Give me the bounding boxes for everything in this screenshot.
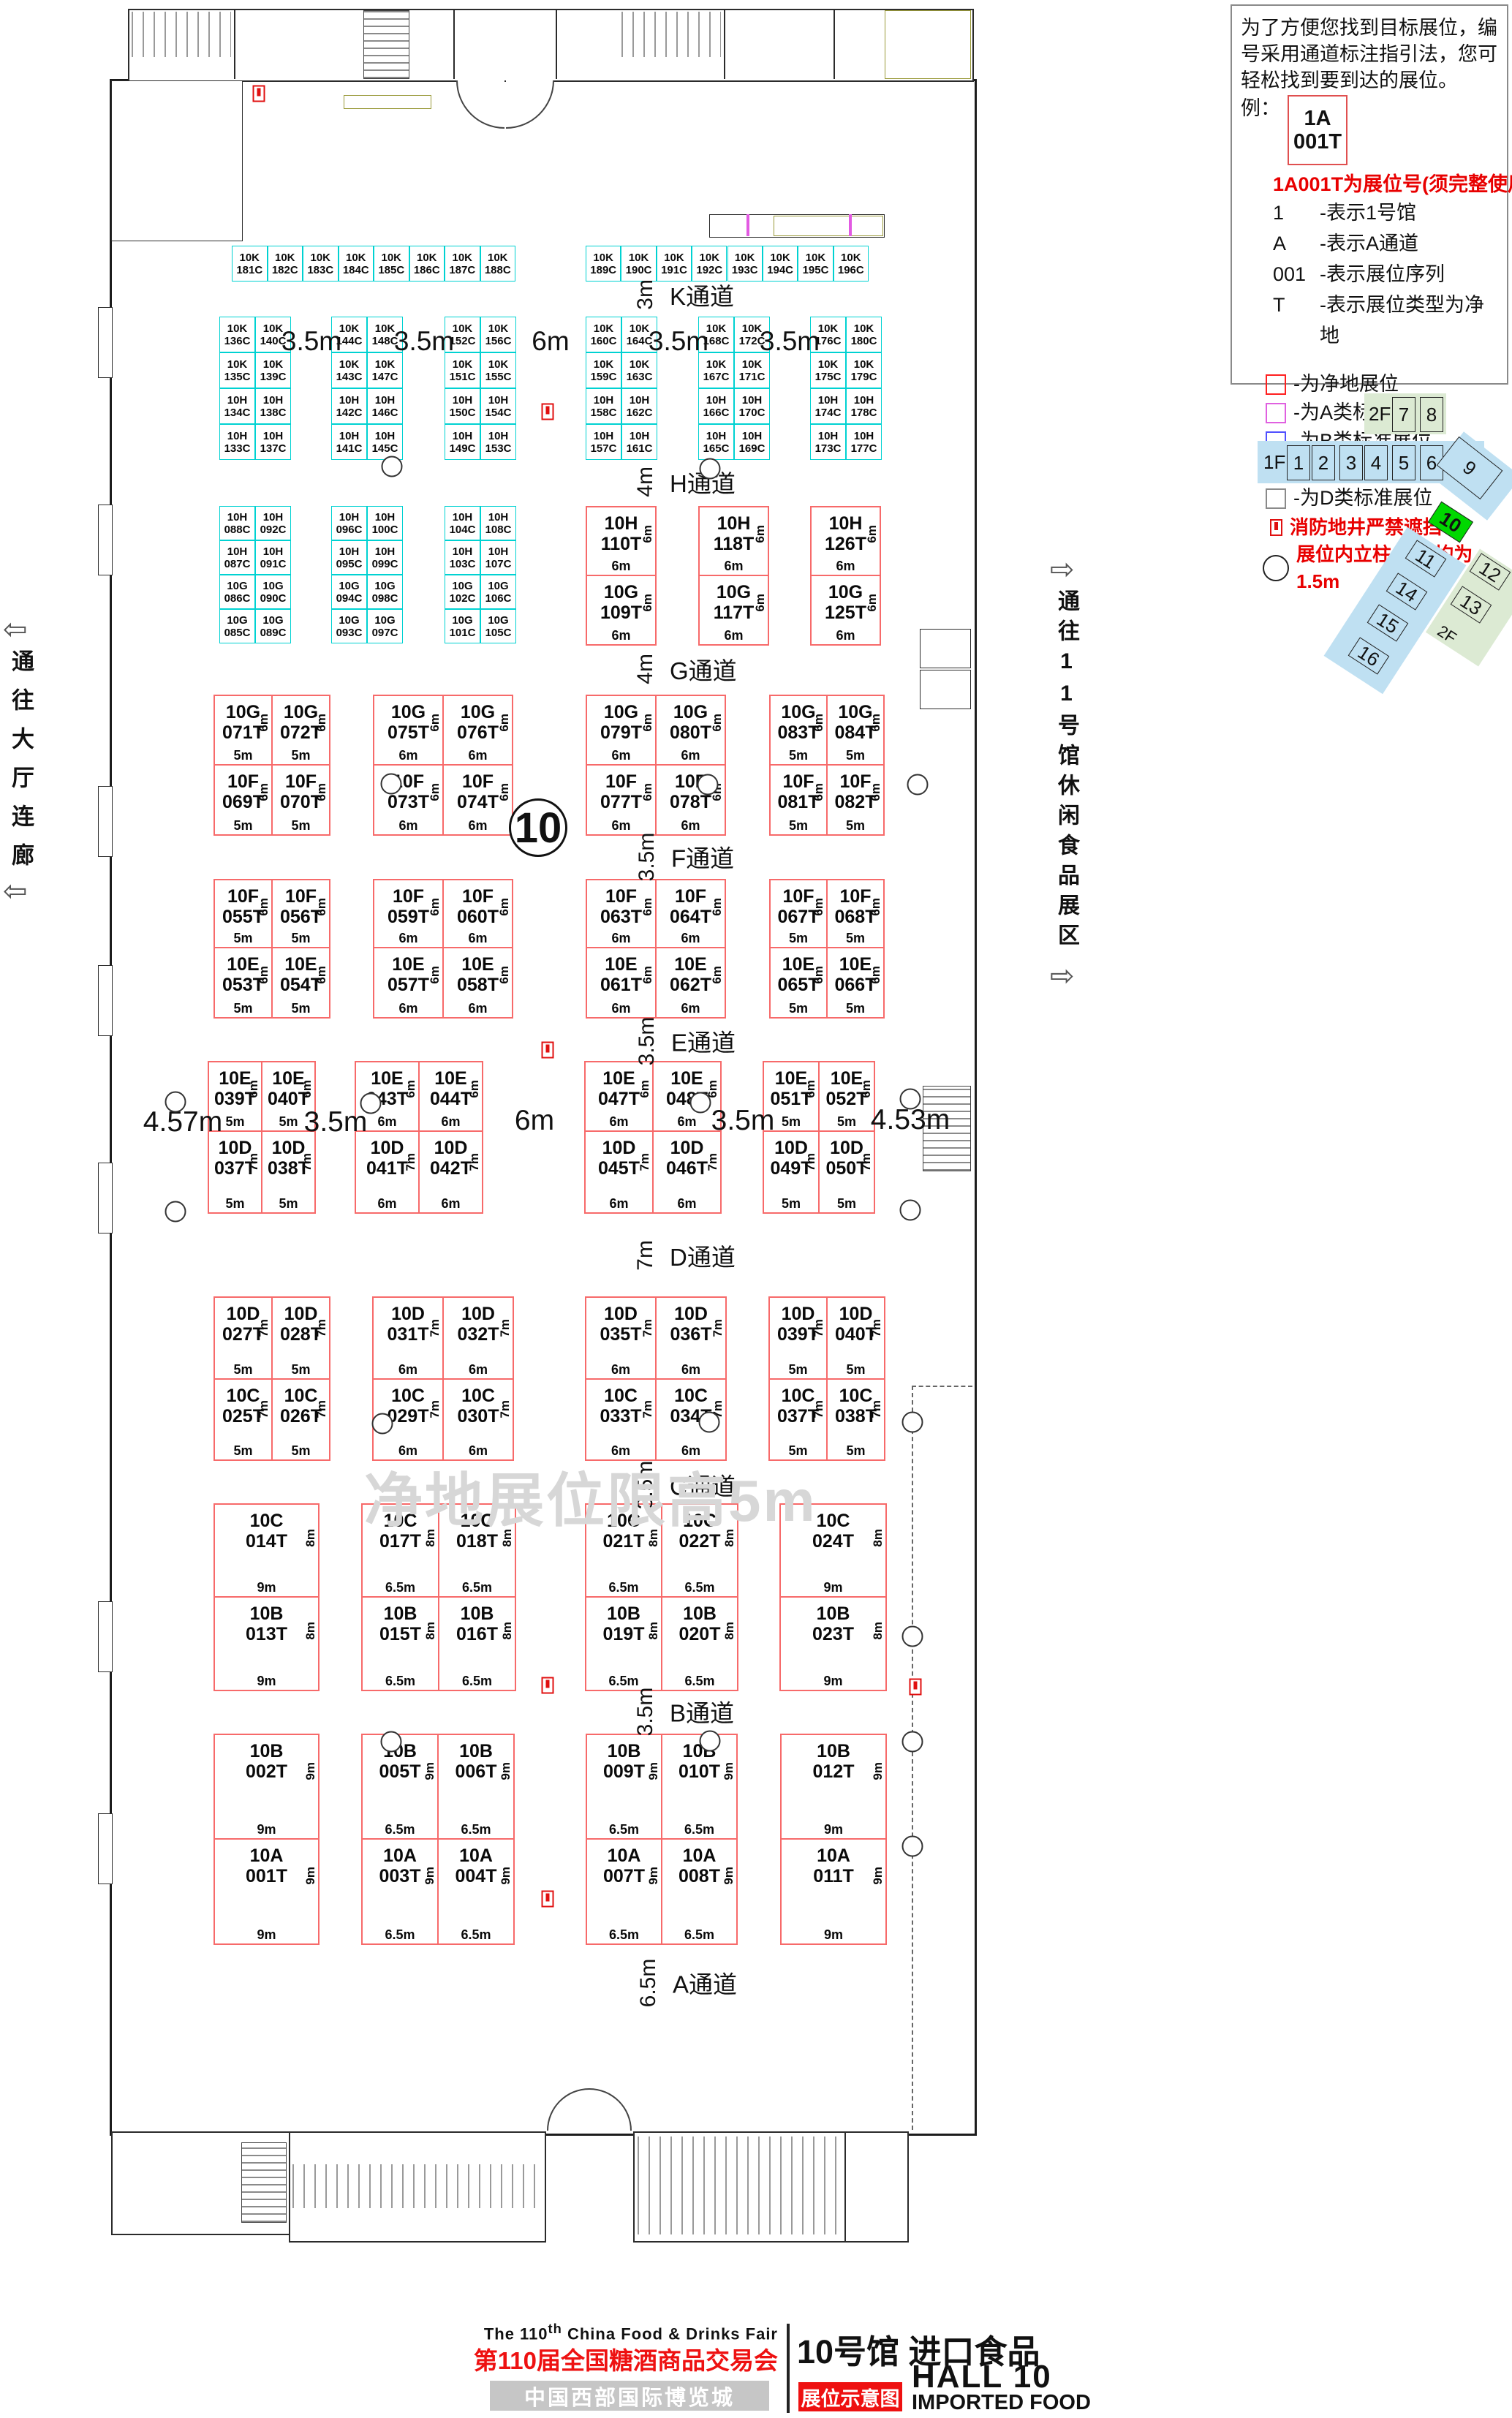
booth-text: 6.5m xyxy=(587,1822,661,1837)
booth-text: B通道 xyxy=(670,1694,734,1729)
booth-text: 6m xyxy=(640,966,655,984)
minimap-2f-label: 2F xyxy=(1369,403,1391,426)
booth-10C037T: 10C037T7m5m xyxy=(768,1378,828,1461)
booth-text: 175C xyxy=(815,371,842,383)
booth-10G075T: 10G075T6m6m xyxy=(373,695,444,766)
booth-text: 195C xyxy=(803,264,829,276)
booth-text: 6m xyxy=(444,1001,512,1016)
booth-10D042T: 10D042T7m6m xyxy=(418,1130,483,1214)
booth-text: 10K xyxy=(770,252,790,264)
booth-text: 10K xyxy=(854,322,874,335)
booth-text: 10G xyxy=(488,580,508,592)
booth-text: 002T xyxy=(215,1761,318,1782)
example-booth-line2: 001T xyxy=(1293,130,1342,154)
booth-text: 6m xyxy=(420,1114,482,1130)
dimension-label: 3.5m xyxy=(711,1105,775,1137)
booth-text: 10H xyxy=(594,430,614,442)
column-circle xyxy=(900,1089,921,1110)
booth-text: 10K xyxy=(594,358,614,371)
column-circle xyxy=(381,774,402,795)
watermark: 净地展位限高5m xyxy=(364,1454,817,1538)
booth-text: 7m xyxy=(706,1153,720,1171)
booth-10K185C: 10K185C xyxy=(374,246,409,282)
booth-10E058T: 10E058T6m6m xyxy=(442,947,513,1019)
booth-10B002T: 10B002T9m9m xyxy=(213,1734,320,1840)
booth-text: 4m xyxy=(633,654,658,684)
booth-text: 011T xyxy=(782,1866,885,1886)
booth-10F059T: 10F059T6m6m xyxy=(373,879,444,948)
booth-text: 6m xyxy=(710,714,725,732)
booth-text: 6m xyxy=(657,818,725,834)
booth-text: 10G xyxy=(339,580,359,592)
column-circle xyxy=(381,1731,402,1753)
booth-text: 5m xyxy=(273,1362,329,1378)
booth-text: 6m xyxy=(865,525,880,543)
booth-text: 099C xyxy=(372,558,398,570)
booth-10C038T: 10C038T7m5m xyxy=(826,1378,885,1461)
booth-10D040T: 10D040T7m5m xyxy=(826,1296,885,1380)
booth-text: 10K xyxy=(339,322,360,335)
booth-text: 8m xyxy=(303,1622,318,1640)
booth-text: 10H xyxy=(263,511,284,524)
booth-text: 5m xyxy=(828,1362,884,1378)
booth-text: 6m xyxy=(300,1080,314,1098)
booth-10D035T: 10D035T7m6m xyxy=(585,1296,657,1380)
booth-10K159C: 10K159C xyxy=(586,352,621,388)
booth-text: 10B xyxy=(215,1741,318,1761)
booth-10H091C: 10H091C xyxy=(255,540,291,575)
booth-10D038T: 10D038T7m5m xyxy=(261,1130,316,1214)
booth-text: 5m xyxy=(273,818,329,834)
booth-10F078T: 10F078T6m6m xyxy=(655,764,726,836)
booth-10K194C: 10K194C xyxy=(763,246,798,282)
booth-text: 10H xyxy=(854,394,874,407)
booth-text: 9m xyxy=(646,1867,661,1885)
booth-text: 6m xyxy=(374,1362,442,1378)
booth-text: 088C xyxy=(224,524,251,536)
booth-text: 196C xyxy=(838,264,864,276)
booth-10D039T: 10D039T7m5m xyxy=(768,1296,828,1380)
booth-text: 6m xyxy=(428,714,442,732)
booth-text: 10H xyxy=(339,394,360,407)
booth-text: 6m xyxy=(356,1196,418,1212)
booth-text: 6m xyxy=(657,748,725,763)
dimension-label: 3.5m xyxy=(760,326,820,357)
booth-text: 182C xyxy=(272,264,298,276)
booth-text: 6m xyxy=(657,931,725,946)
booth-text: 10K xyxy=(339,358,360,371)
booth-text: 165C xyxy=(703,442,730,455)
booth-text: 10H xyxy=(453,511,473,524)
column-circle xyxy=(360,1093,382,1114)
booth-text: 5m xyxy=(820,1196,874,1212)
booth-text: 9m xyxy=(722,1867,736,1885)
booth-text: 10H xyxy=(488,430,509,442)
booth-10G071T: 10G071T6m5m xyxy=(213,695,273,766)
booth-text: 8m xyxy=(871,1529,885,1547)
booth-text: 8m xyxy=(303,1529,318,1547)
booth-text: 6m xyxy=(640,783,655,801)
booth-text: 5m xyxy=(771,748,826,763)
booth-text: 6m xyxy=(404,1080,418,1098)
booth-text: 9m xyxy=(781,1580,885,1595)
booth-text: 10H xyxy=(818,430,839,442)
booth-text: 9m xyxy=(499,1867,513,1885)
booth-text: 189C xyxy=(590,264,616,276)
booth-10K180C: 10K180C xyxy=(846,317,882,352)
booth-text: 10H xyxy=(453,394,473,407)
booth-text: 095C xyxy=(336,558,363,570)
booth-text: 7m xyxy=(428,1319,442,1337)
booth-text: 136C xyxy=(224,335,251,347)
booth-text: 3m xyxy=(633,279,658,310)
booth-10F063T: 10F063T6m6m xyxy=(586,879,657,948)
booth-10A011T: 10A011T9m9m xyxy=(780,1838,887,1945)
booth-text: 180C xyxy=(851,335,877,347)
title-en-part: The 110 xyxy=(484,2324,548,2343)
booth-text: 6m xyxy=(587,818,655,834)
column-circle xyxy=(165,1092,186,1113)
booth-text: 6m xyxy=(640,525,655,543)
minimap-hall-4: 4 xyxy=(1364,445,1388,480)
booth-text: 6.5m xyxy=(587,1927,661,1943)
booth-10G079T: 10G079T6m6m xyxy=(586,695,657,766)
booth-text: 10G xyxy=(227,614,247,627)
booth-text: 6m xyxy=(804,1080,818,1098)
booth-text: 170C xyxy=(739,407,766,419)
booth-10K163C: 10K163C xyxy=(621,352,657,388)
booth-text: 191C xyxy=(661,264,687,276)
booth-text: 6m xyxy=(812,559,880,574)
booth-text: 10K xyxy=(417,252,437,264)
booth-text: 10H xyxy=(227,394,248,407)
booth-10A001T: 10A001T9m9m xyxy=(213,1838,320,1945)
booth-10K193C: 10K193C xyxy=(727,246,763,282)
booth-10H126T: 10H126T6m6m xyxy=(810,506,881,576)
booth-text: 169C xyxy=(739,442,766,455)
booth-10H107C: 10H107C xyxy=(480,540,516,575)
booth-text: 7m xyxy=(633,1240,658,1271)
booth-text: K通道 xyxy=(670,277,734,312)
booth-10F060T: 10F060T6m6m xyxy=(442,879,513,948)
booth-10K160C: 10K160C xyxy=(586,317,621,352)
dimension-label: 3.5m xyxy=(281,326,341,357)
booth-text: 6m xyxy=(497,966,512,984)
booth-text: 10H xyxy=(375,394,396,407)
hall-number: 10 xyxy=(515,804,562,853)
booth-text: 6m xyxy=(586,1114,652,1130)
booth-text: 6m xyxy=(657,1001,725,1016)
booth-10G106C: 10G106C xyxy=(480,575,516,609)
booth-10H154C: 10H154C xyxy=(480,388,516,424)
legend-desc: -表示A通道 xyxy=(1320,228,1418,259)
booth-text: 8m xyxy=(423,1622,438,1640)
booth-text: 106C xyxy=(485,592,512,605)
booth-10K151C: 10K151C xyxy=(445,352,480,388)
booth-10H150C: 10H150C xyxy=(445,388,480,424)
booth-text: 7m xyxy=(638,1153,652,1171)
legend-key: A xyxy=(1273,228,1320,259)
booth-text: 193C xyxy=(732,264,758,276)
booth-text: 10H xyxy=(488,394,509,407)
booth-10H161C: 10H161C xyxy=(621,424,657,460)
booth-text: 094C xyxy=(336,592,363,605)
booth-10K135C: 10K135C xyxy=(219,352,255,388)
title-english: The 110th China Food & Drinks Fair xyxy=(468,2321,778,2343)
booth-text: 163C xyxy=(627,371,653,383)
booth-10H103C: 10H103C xyxy=(445,540,480,575)
booth-10K171C: 10K171C xyxy=(734,352,770,388)
booth-text: G通道 xyxy=(670,651,737,687)
booth-10H096C: 10H096C xyxy=(331,506,367,540)
booth-text: 145C xyxy=(372,442,398,455)
booth-text: 6m xyxy=(587,931,655,946)
hall-id: 5 xyxy=(1399,452,1409,475)
booth-text: 6m xyxy=(812,628,880,643)
booth-text: 6m xyxy=(640,714,655,732)
title-divider xyxy=(787,2324,790,2413)
booth-10G085C: 10G085C xyxy=(219,609,255,643)
booth-text: 6m xyxy=(374,1001,442,1016)
booth-text: 6m xyxy=(586,1196,652,1212)
hall-title-en: HALL 10 xyxy=(912,2359,1052,2395)
booth-text: 6.5m xyxy=(363,1927,437,1943)
booth-text: 089C xyxy=(260,627,287,639)
column-circle xyxy=(902,1836,923,1857)
booth-text: 166C xyxy=(703,407,730,419)
booth-text: 10B xyxy=(781,1603,885,1624)
booth-text: 10H xyxy=(227,545,248,558)
booth-text: 086C xyxy=(224,592,251,605)
booth-10B015T: 10B015T8m6.5m xyxy=(361,1596,439,1691)
booth-text: 10H xyxy=(339,430,360,442)
booth-10E047T: 10E047T6m6m xyxy=(584,1061,654,1132)
title-chinese: 第110届全国糖酒商品交易会 xyxy=(468,2341,778,2376)
hall-title-sub: IMPORTED FOOD xyxy=(912,2391,1091,2415)
booth-text: 6m xyxy=(640,898,655,916)
booth-text: 10H xyxy=(594,394,614,407)
aisle-label-B: 3.5mB通道 xyxy=(633,1688,734,1737)
legend-headline: 1A001T为展位号(须完整使用) xyxy=(1273,171,1500,197)
booth-text: 10H xyxy=(453,545,473,558)
booth-text: 10K xyxy=(630,358,650,371)
booth-10H099C: 10H099C xyxy=(367,540,403,575)
booth-10E061T: 10E061T6m6m xyxy=(586,947,657,1019)
booth-text: 10K xyxy=(275,252,295,264)
legend-key: 001 xyxy=(1273,259,1320,290)
booth-text: 8m xyxy=(722,1622,737,1640)
booth-text: 6.5m xyxy=(586,1580,661,1595)
booth-10F070T: 10F070T6m5m xyxy=(271,764,330,836)
booth-text: 7m xyxy=(859,1153,874,1171)
booth-text: D通道 xyxy=(670,1238,736,1273)
booth-text: 10K xyxy=(806,252,826,264)
booth-10H137C: 10H137C xyxy=(255,424,291,460)
booth-text: 9m xyxy=(215,1927,318,1943)
booth-text: 6m xyxy=(257,966,271,984)
hall-id: 6 xyxy=(1426,452,1437,475)
minimap-hall-7: 7 xyxy=(1392,397,1415,432)
booth-text: 6.5m xyxy=(636,1959,661,2008)
venue-bar: 中国西部国际博览城 xyxy=(490,2381,769,2411)
booth-text: 105C xyxy=(485,627,512,639)
booth-10H157C: 10H157C xyxy=(586,424,621,460)
booth-text: 101C xyxy=(450,627,476,639)
booth-text: 10K xyxy=(263,358,284,371)
booth-text: 7m xyxy=(804,1153,818,1171)
booth-10D032T: 10D032T7m6m xyxy=(442,1296,514,1380)
booth-10G109T: 10G109T6m6m xyxy=(586,575,657,646)
booth-text: 186C xyxy=(414,264,440,276)
booth-10B012T: 10B012T9m9m xyxy=(780,1734,887,1840)
booth-10A003T: 10A003T9m6.5m xyxy=(361,1838,439,1945)
booth-text: 10H xyxy=(630,430,650,442)
minimap-hall-10-current: 10 xyxy=(1428,502,1473,543)
booth-text: 5m xyxy=(771,818,826,834)
booth-text: 10K xyxy=(841,252,861,264)
aisle-label-D: 7mD通道 xyxy=(633,1238,736,1273)
dimension-label: 6m xyxy=(532,326,569,357)
booth-text: 6m xyxy=(314,783,329,801)
booth-10G125T: 10G125T6m6m xyxy=(810,575,881,646)
booth-text: 150C xyxy=(450,407,476,419)
booth-text: 093C xyxy=(336,627,363,639)
booth-text: 10G xyxy=(374,580,395,592)
booth-text: 10K xyxy=(227,358,248,371)
booth-text: 6m xyxy=(444,931,512,946)
booth-text: 7m xyxy=(257,1400,271,1418)
booth-text: 6m xyxy=(586,1362,655,1378)
booth-text: 9m xyxy=(722,1762,736,1780)
booth-text: 7m xyxy=(257,1319,271,1337)
booth-10B019T: 10B019T8m6.5m xyxy=(585,1596,662,1691)
booth-10H146C: 10H146C xyxy=(367,388,403,424)
booth-10G098C: 10G098C xyxy=(367,575,403,609)
booth-text: 10H xyxy=(488,545,509,558)
booth-10C025T: 10C025T7m5m xyxy=(213,1378,273,1461)
booth-text: 10K xyxy=(818,322,839,335)
booth-text: 10G xyxy=(488,614,508,627)
booth-text: 5m xyxy=(262,1196,314,1212)
booth-text: 6m xyxy=(497,714,512,732)
minimap-hall-3: 3 xyxy=(1339,445,1363,480)
booth-10K155C: 10K155C xyxy=(480,352,516,388)
booth-text: 143C xyxy=(336,371,363,383)
booth-text: 6m xyxy=(444,1362,513,1378)
booth-10K143C: 10K143C xyxy=(331,352,367,388)
booth-text: 3.5m xyxy=(633,1688,658,1737)
booth-text: 6m xyxy=(865,594,880,612)
booth-text: 10A xyxy=(215,1845,318,1866)
booth-text: 102C xyxy=(450,592,476,605)
booth-10B009T: 10B009T9m6.5m xyxy=(586,1734,662,1840)
booth-10G084T: 10G084T6m5m xyxy=(826,695,885,766)
booth-text: 6m xyxy=(257,898,271,916)
booth-10G090C: 10G090C xyxy=(255,575,291,609)
fire-hydrant-icon xyxy=(542,404,554,420)
aisle-label-A: 6.5mA通道 xyxy=(636,1959,737,2008)
booth-text: 104C xyxy=(450,524,476,536)
booth-text: 6m xyxy=(654,1196,720,1212)
booth-10D049T: 10D049T7m5m xyxy=(763,1130,820,1214)
booth-text: 10K xyxy=(594,322,614,335)
booth-10G094C: 10G094C xyxy=(331,575,367,609)
booth-text: 135C xyxy=(224,371,251,383)
booth-text: 6m xyxy=(374,931,442,946)
booth-text: 9m xyxy=(423,1867,437,1885)
booth-text: 5m xyxy=(828,748,883,763)
booth-10G076T: 10G076T6m6m xyxy=(442,695,513,766)
column-circle xyxy=(372,1413,393,1435)
booth-text: F通道 xyxy=(671,839,734,874)
booth-text: 167C xyxy=(703,371,730,383)
booth-text: 7m xyxy=(300,1153,314,1171)
booth-text: 6m xyxy=(753,525,768,543)
booth-text: 096C xyxy=(336,524,363,536)
booth-text: 5m xyxy=(828,1001,883,1016)
booth-10D031T: 10D031T7m6m xyxy=(372,1296,444,1380)
booth-10E052T: 10E052T6m5m xyxy=(818,1061,875,1132)
booth-10K195C: 10K195C xyxy=(798,246,833,282)
booth-text: 10B xyxy=(439,1603,515,1624)
booth-text: 10K xyxy=(664,252,684,264)
booth-text: 9m xyxy=(303,1867,318,1885)
booth-text: A通道 xyxy=(673,1965,737,2000)
booth-10E044T: 10E044T6m6m xyxy=(418,1061,483,1132)
booth-10F056T: 10F056T6m5m xyxy=(271,879,330,948)
column-circle xyxy=(900,1200,921,1221)
booth-text: 5m xyxy=(215,931,271,946)
booth-text: 153C xyxy=(485,442,512,455)
booth-text: 10G xyxy=(374,614,395,627)
booth-10K175C: 10K175C xyxy=(810,352,846,388)
booth-text: 6m xyxy=(467,1080,482,1098)
booth-text: 6m xyxy=(869,898,883,916)
booth-10H169C: 10H169C xyxy=(734,424,770,460)
booth-text: 001T xyxy=(215,1866,318,1886)
booth-10K187C: 10K187C xyxy=(445,246,480,282)
booth-text: 7m xyxy=(246,1153,261,1171)
fire-hydrant-icon xyxy=(542,1677,554,1694)
booth-text: 7m xyxy=(314,1319,329,1337)
booth-text: 6m xyxy=(869,783,883,801)
booth-10D050T: 10D050T7m5m xyxy=(818,1130,875,1214)
booth-text: 10K xyxy=(818,358,839,371)
booth-text: 147C xyxy=(372,371,398,383)
column-circle xyxy=(382,456,403,477)
booth-text: 6.5m xyxy=(439,1674,515,1689)
booth-text: 8m xyxy=(646,1622,661,1640)
booth-text: 183C xyxy=(307,264,333,276)
booth-text: 100C xyxy=(372,524,398,536)
minimap-hall-1: 1 xyxy=(1287,445,1310,480)
booth-text: 6m xyxy=(710,898,725,916)
booth-text: 6.5m xyxy=(439,1580,515,1595)
booth-10H138C: 10H138C xyxy=(255,388,291,424)
booth-text: 6.5m xyxy=(363,1674,438,1689)
booth-text: 154C xyxy=(485,407,512,419)
booth-text: 156C xyxy=(485,335,512,347)
booth-text: 9m xyxy=(782,1822,885,1837)
booth-10G093C: 10G093C xyxy=(331,609,367,643)
booth-text: E通道 xyxy=(671,1024,736,1059)
booth-text: 141C xyxy=(336,442,363,455)
hall-locator-map: 2F 7 8 1F 1 2 3 4 5 6 9 10 11 14 15 16 1… xyxy=(1206,384,1512,698)
booth-text: 6m xyxy=(587,559,655,574)
booth-10G089C: 10G089C xyxy=(255,609,291,643)
booth-10B020T: 10B020T8m6.5m xyxy=(661,1596,738,1691)
booth-text: 6m xyxy=(812,966,826,984)
